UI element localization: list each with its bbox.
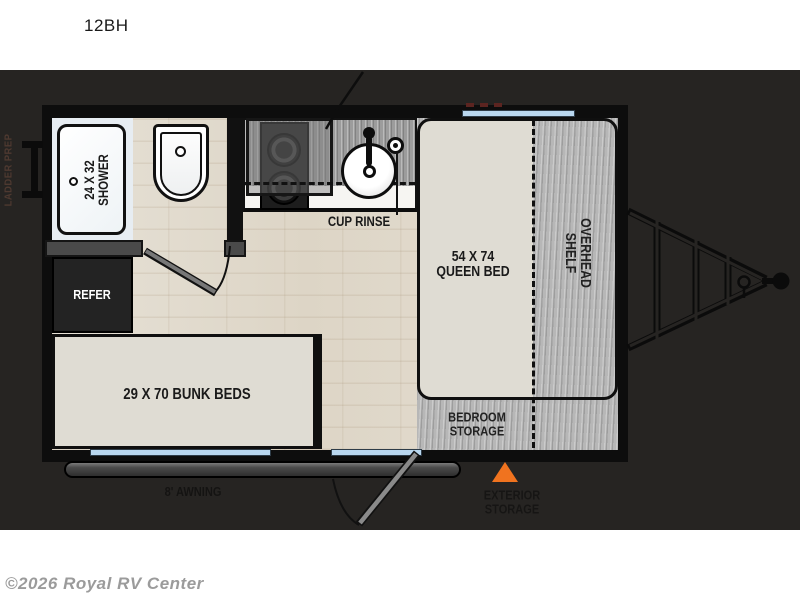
awning-label: 8' AWNING: [165, 485, 222, 499]
cup-rinse-dot-icon: [393, 143, 398, 148]
queen-bed-label-line2: QUEEN BED: [436, 265, 509, 280]
faucet-knob-icon: [363, 127, 375, 139]
window-top: [462, 110, 575, 117]
bedroom-storage-label-line2: STORAGE: [448, 424, 506, 438]
shower-base-wall: [45, 240, 143, 257]
sink-drain-icon: [363, 165, 376, 178]
bunk-beds-label: 29 X 70 BUNK BEDS: [123, 387, 250, 403]
window-bottom: [90, 449, 271, 456]
trim-marks: [466, 103, 508, 107]
floorplan-page: 12BH 24 X 32 SHOWER REFER: [0, 0, 800, 600]
refrigerator-label: REFER: [73, 288, 110, 302]
bed-shelf-divider: [532, 120, 535, 448]
entry-door-arc: [333, 479, 359, 525]
overhead-shelf-label-line2: SHELF: [562, 218, 577, 288]
entry-arrow-icon: [492, 462, 518, 482]
exterior-storage-label-line1: EXTERIOR: [484, 488, 540, 502]
model-title: 12BH: [84, 17, 129, 35]
cup-rinse-label: CUP RINSE: [328, 215, 390, 229]
rear-bracket-icon: [22, 191, 43, 198]
tongue-jack-icon: [739, 277, 750, 288]
awning-bar: [64, 461, 461, 478]
ladder-prep-label: LADDER PREP: [3, 134, 14, 207]
queen-bed-label: 54 X 74 QUEEN BED: [436, 250, 509, 280]
shower-label: 24 X 32 SHOWER: [83, 154, 111, 206]
exterior-storage-label: EXTERIOR STORAGE: [484, 488, 540, 515]
bedroom-storage-label: BEDROOM STORAGE: [448, 410, 506, 437]
overhead-shelf-label-line1: OVERHEAD: [577, 218, 592, 288]
bathroom-wall: [227, 118, 243, 240]
bedroom-storage-label-line1: BEDROOM: [448, 410, 506, 424]
rear-bracket-icon: [31, 144, 38, 197]
shower-label-line1: 24 X 32: [83, 154, 97, 206]
overhead-shelf-label: OVERHEAD SHELF: [562, 218, 592, 288]
dark-backdrop: 24 X 32 SHOWER REFER CUP RINSE: [0, 70, 800, 530]
entry-door-window: [331, 449, 422, 456]
watermark: ©2026 Royal RV Center: [5, 574, 204, 594]
coupler-icon: [773, 273, 790, 290]
bathroom-wall-cap: [224, 240, 246, 257]
tongue-frame: [628, 211, 790, 348]
shower-drain-icon: [69, 177, 78, 186]
toilet-bowl-icon: [160, 132, 202, 196]
faucet-icon: [366, 136, 372, 166]
queen-bed-label-line1: 54 X 74: [436, 250, 509, 265]
exterior-storage-label-line2: STORAGE: [484, 502, 540, 516]
shower-label-line2: SHOWER: [97, 154, 111, 206]
toilet-flush-icon: [175, 146, 186, 157]
